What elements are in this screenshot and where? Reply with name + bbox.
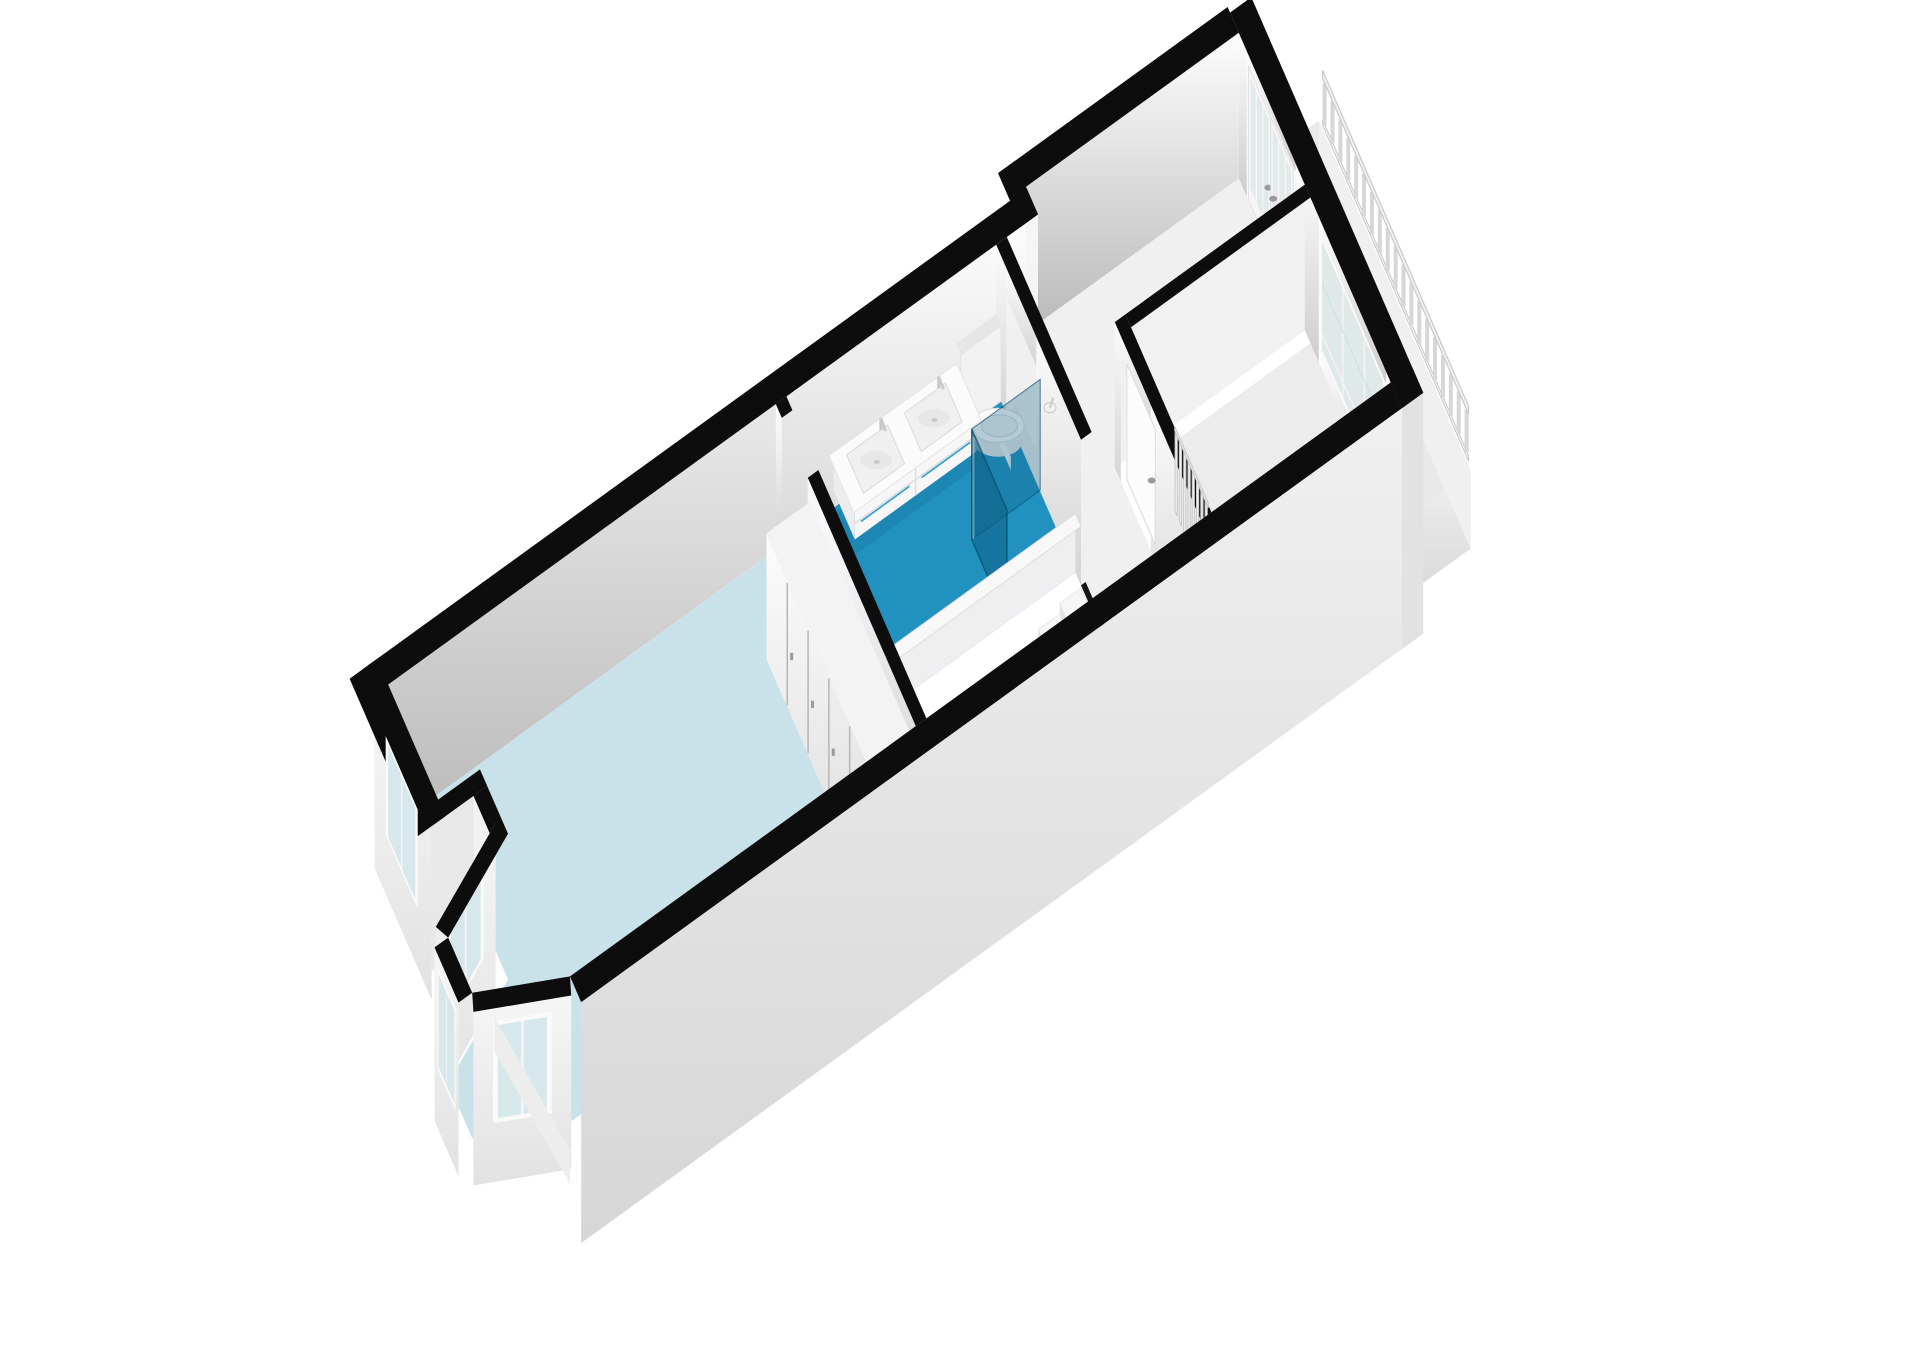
radiator-fin	[1179, 441, 1181, 526]
basin-drain	[932, 418, 938, 422]
across-wall-face	[1115, 322, 1121, 481]
floorplan-3d-render	[0, 0, 1920, 1358]
basin-drain	[874, 460, 880, 464]
end-wall-segment	[1239, 33, 1247, 197]
window-mullion	[401, 775, 403, 870]
se-outer-corner	[1402, 393, 1423, 649]
door-glass-pane	[1257, 92, 1262, 215]
door-glass-pane	[1250, 77, 1255, 200]
radiator-fin	[1175, 432, 1177, 516]
radiator-fin	[1184, 451, 1186, 536]
door-handle	[1148, 478, 1156, 484]
door-handle	[1269, 196, 1277, 202]
floorplan-viewport	[0, 0, 1920, 1358]
bay-window-front-mullion	[446, 992, 447, 1087]
